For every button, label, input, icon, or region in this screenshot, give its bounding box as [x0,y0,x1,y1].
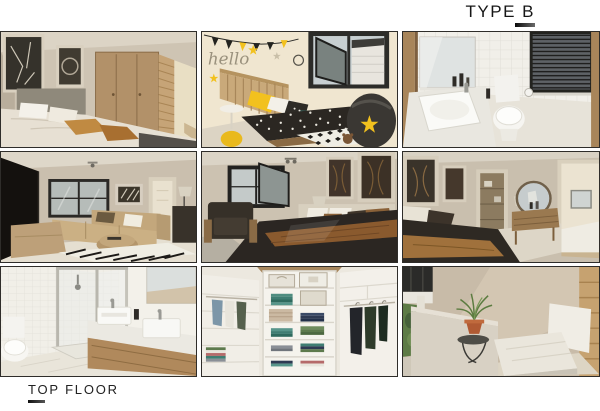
render-bedroom-wardrobe [0,31,197,148]
page-footer: TOP FLOOR [28,383,119,403]
render-bedroom-dresser [402,151,600,263]
bathroom-guest-illustration [403,32,599,147]
walk-in-closet-illustration [202,267,397,376]
bedroom-wardrobe-illustration [1,32,196,147]
render-bathroom-double-vanity [0,266,197,377]
bathroom-double-vanity-illustration [1,267,196,376]
kids-bedroom-illustration: hello [202,32,397,147]
render-kids-bedroom: hello [201,31,398,148]
kids-room-wall-text: hello [208,48,249,68]
bedroom-dresser-illustration [403,152,599,262]
render-balcony-seat [402,266,600,377]
render-living-room [0,151,197,263]
balcony-seat-illustration [403,267,599,376]
title-underline [515,23,535,27]
floor-label: TOP FLOOR [28,383,119,397]
render-walk-in-closet [201,266,398,377]
main-bedroom-illustration [202,152,397,262]
page-header: TYPE B [466,3,535,27]
render-main-bedroom [201,151,398,263]
living-room-illustration [1,152,196,262]
gallery-grid: hello [0,31,600,377]
brochure-page: TYPE B [0,0,600,411]
floor-underline [28,400,45,403]
page-title: TYPE B [466,3,535,22]
render-bathroom-guest [402,31,600,148]
